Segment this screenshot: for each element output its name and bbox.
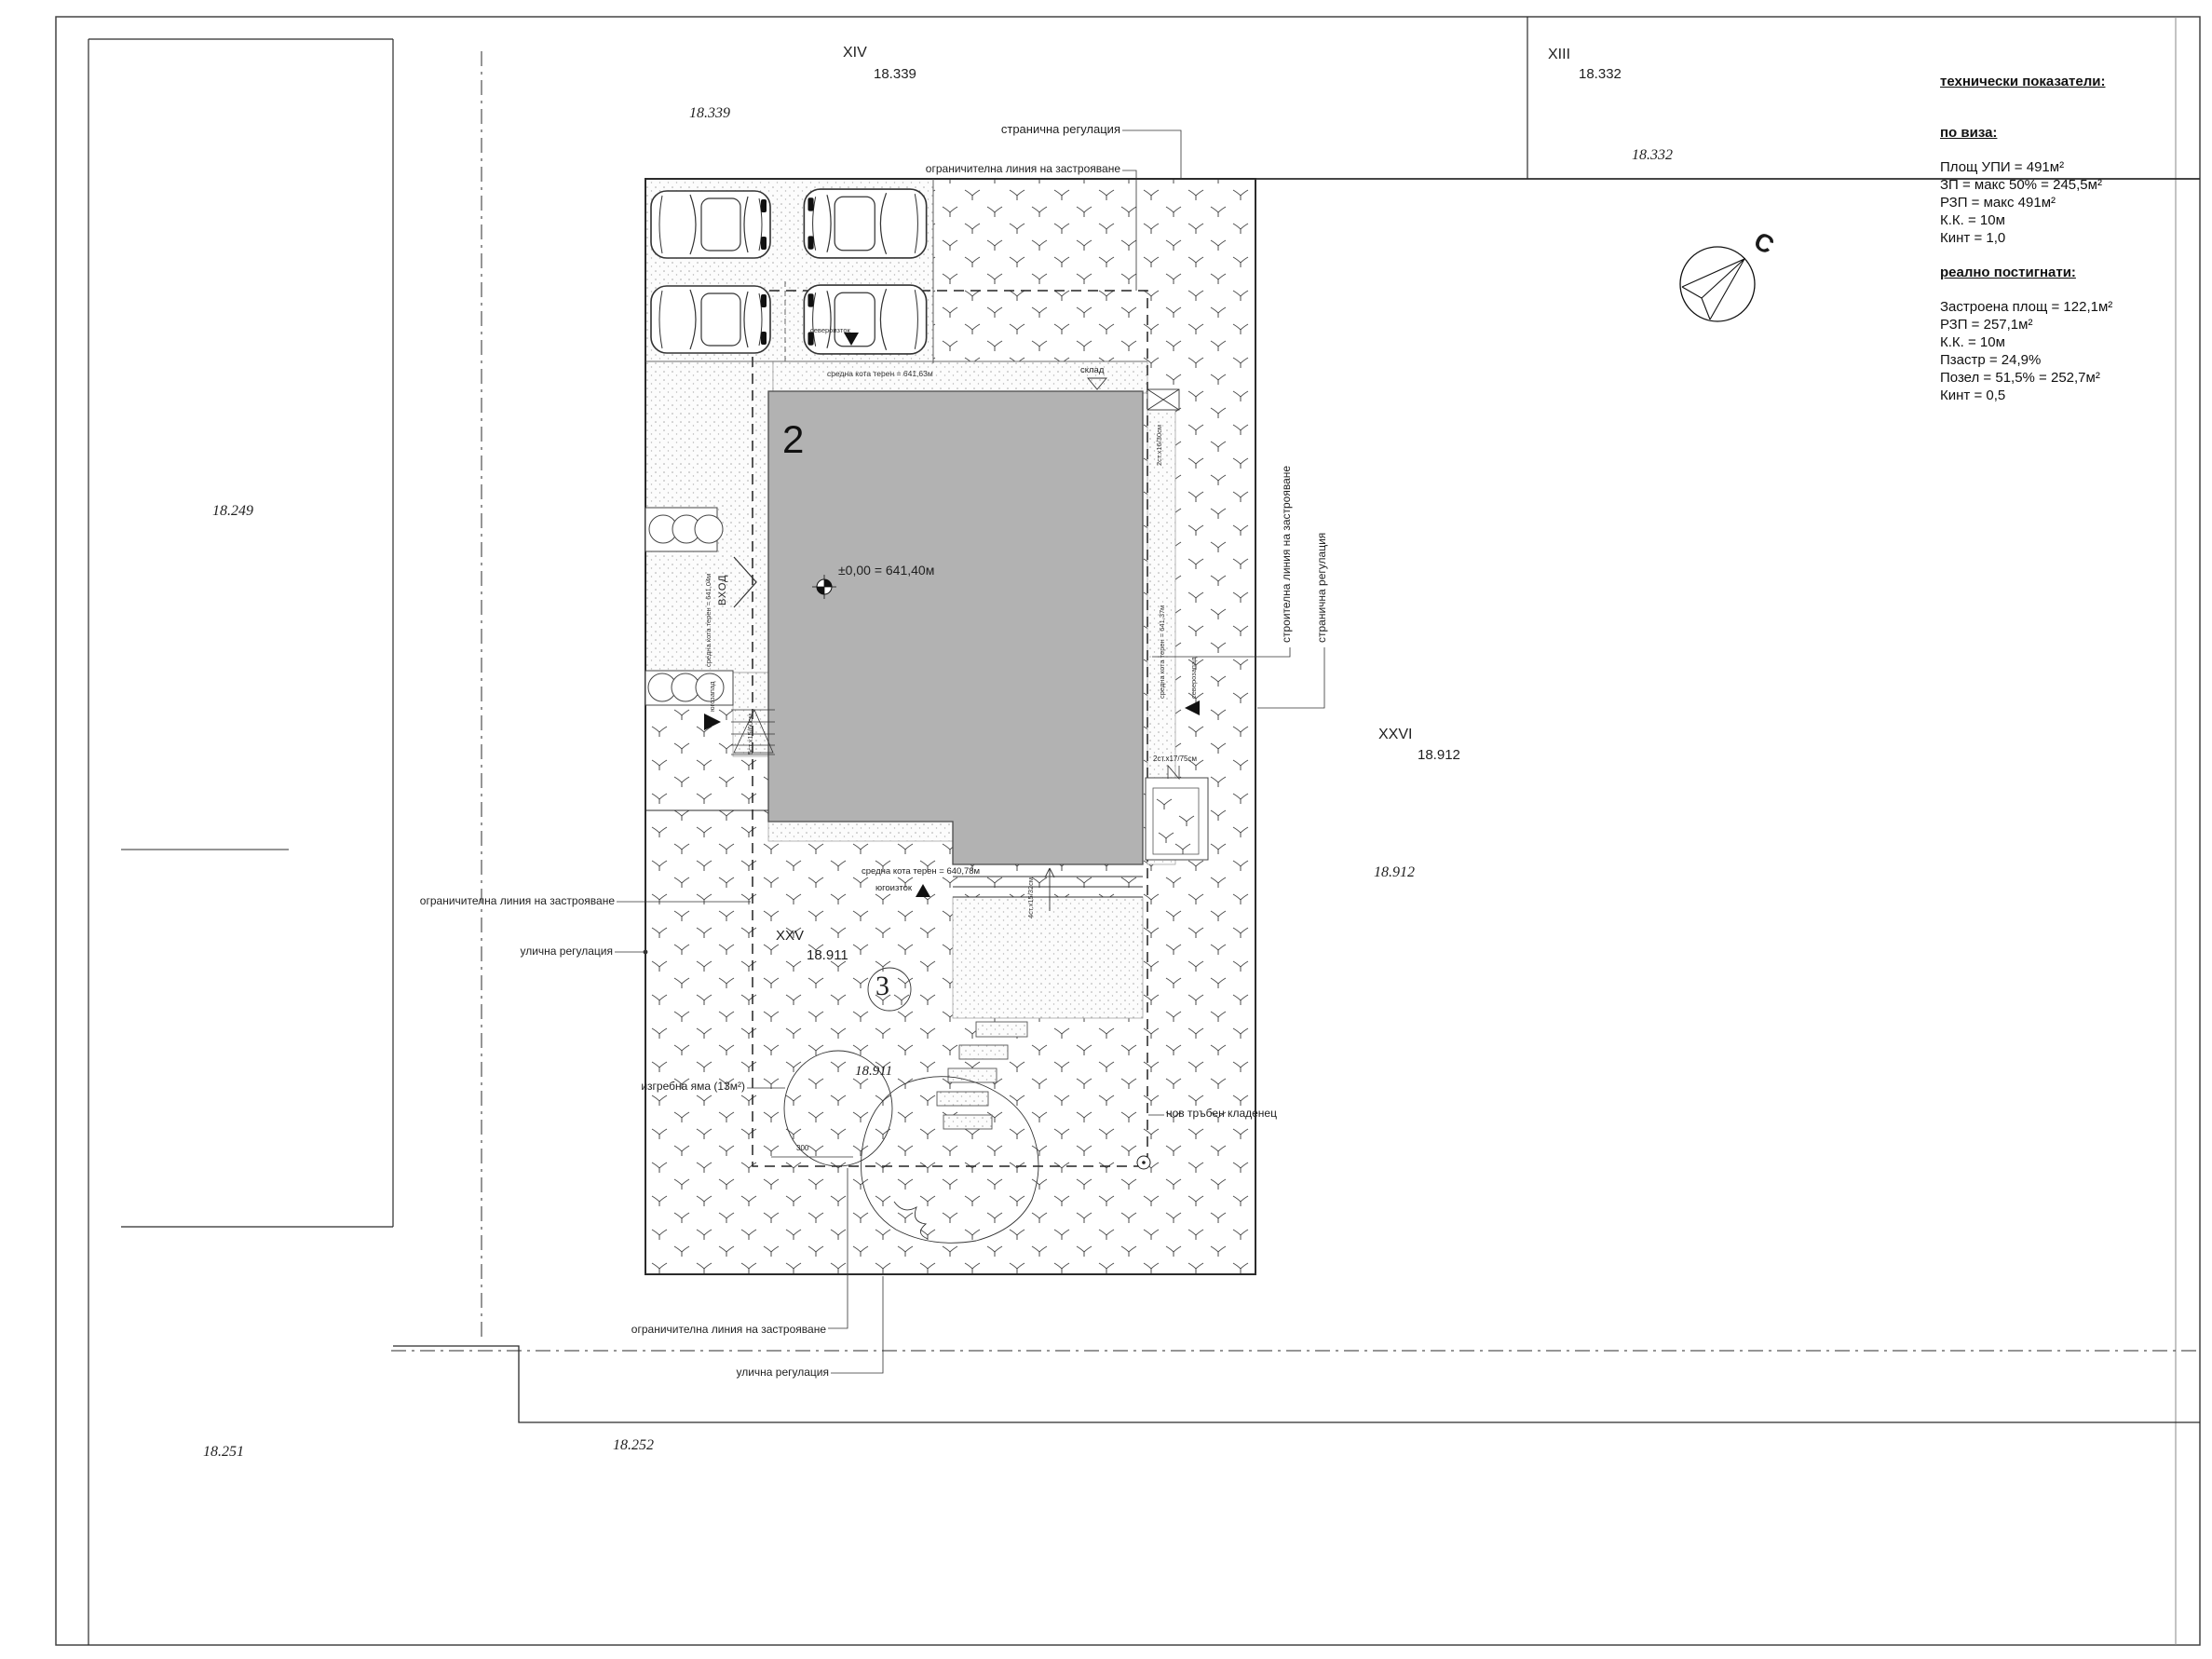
dim-300-label: 300 [796,1144,808,1152]
terrain-south-label: средна кота терен = 640,78м [862,866,980,877]
direction-sw-label: югозапад [708,681,716,712]
building-number: 2 [782,417,804,462]
plot-xiii-id: XIII [1548,47,1570,63]
side-regulation-label-top: странична регулация [969,122,1120,136]
corner-elev-18252: 18.252 [613,1437,654,1454]
street-regulation-label-south: улична регулация [699,1366,829,1379]
corner-elev-18249: 18.249 [212,503,253,520]
stairs-ne-label: 2ст.х16/30см [1155,425,1163,466]
tech-line: ЗП = макс 50% = 245,5м² [1940,176,2192,194]
tree-tag-number: 3 [875,971,889,1002]
car-icon [651,286,770,353]
south-walk [768,822,953,841]
storage-label: склад [1080,365,1104,375]
tech-line: Кинт = 1,0 [1940,229,2192,247]
car-icon [651,191,770,258]
tech-line: К.К. = 10м [1940,211,2192,229]
tech-pervisa-heading: по виза: [1940,124,2192,142]
plot-xxv-value: 18.911 [807,947,848,963]
limit-line-label-west: ограничителна линия на застрояване [391,894,615,907]
build-line-label-east: строителна линия на застрояване [1280,466,1293,643]
street-regulation-label-west: улична регулация [482,945,613,958]
plan-linework [0,0,2212,1659]
terrain-east-label: средна кота терен = 641,37м [1158,605,1166,699]
stairs-west-label: 5ст.х15/60см [746,714,754,755]
building-footprint [768,391,1143,864]
terrain-north-label: средна кота терен = 641,63м [827,369,933,378]
direction-ne-label: североизток [810,326,850,334]
tech-line: Площ УПИ = 491м² [1940,158,2192,176]
tech-line: РЗП = макс 491м² [1940,194,2192,211]
corner-elev-18912: 18.912 [1374,864,1415,881]
direction-se-label: югоизток [875,883,912,893]
terrain-west-label: средна кота терен = 641,04м [704,574,712,667]
plot-xiv-id: XIV [843,45,867,61]
site-plan-drawing: XIV 18.339 18.339 XIII 18.332 18.332 18.… [0,0,2212,1659]
corner-elev-18911: 18.911 [855,1064,892,1080]
corner-elev-18339: 18.339 [689,105,730,122]
well-label: нов тръбен кладенец [1166,1107,1277,1120]
north-compass-icon [1680,247,1755,321]
plot-xxvi-value: 18.912 [1418,747,1460,763]
entrance-label: ВХОД [717,574,728,605]
patio [953,897,1143,1018]
tech-line: Кинт = 0,5 [1940,387,2192,404]
plot-xiii-value: 18.332 [1579,66,1622,82]
plot-xxvi-id: XXVI [1378,727,1412,743]
corner-elev-18332: 18.332 [1632,147,1673,164]
tech-line: Застроена площ = 122,1м² [1940,298,2192,316]
technical-indicators: технически показатели: по виза: Площ УПИ… [1940,73,2192,404]
tree-icon [695,515,723,543]
limit-line-label-top: ограничителна линия на застрояване [908,162,1120,175]
zero-level-label: ±0,00 = 641,40м [838,563,934,578]
cesspit-label: изгребна яма (13м²) [596,1080,745,1093]
tech-title: технически показатели: [1940,73,2192,90]
se-terrace [1146,766,1208,860]
plot-xxv-id: XXV [776,928,804,944]
direction-nw-label: северозапад [1189,658,1198,699]
limit-line-label-south: ограничителна линия на застрояване [610,1323,826,1336]
car-icon [804,285,926,354]
tech-achieved-heading: реално постигнати: [1940,264,2192,281]
stairs-south-label: 4ст.х15/32см [1026,877,1035,918]
tech-line: РЗП = 257,1м² [1940,316,2192,333]
corner-elev-18251: 18.251 [203,1444,244,1461]
stairs-se-label: 2ст.х17/75см [1153,755,1197,763]
plot-xiv-value: 18.339 [874,66,916,82]
side-regulation-label-east: странична регулация [1315,533,1328,643]
tech-line: Пзастр = 24,9% [1940,351,2192,369]
car-icon [804,189,926,258]
tech-line: К.К. = 10м [1940,333,2192,351]
ne-stairs-icon [1147,389,1179,410]
well-icon [1137,1156,1150,1169]
tech-line: Позел = 51,5% = 252,7м² [1940,369,2192,387]
